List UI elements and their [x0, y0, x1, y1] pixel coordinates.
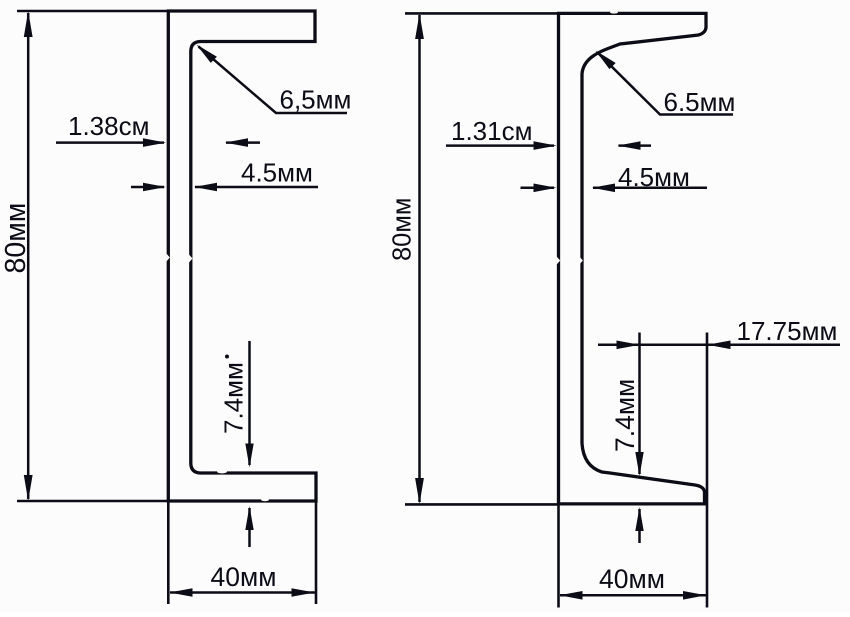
- svg-text:6.5мм: 6.5мм: [664, 87, 736, 117]
- svg-text:1.31см: 1.31см: [451, 116, 532, 146]
- svg-text:17.75мм: 17.75мм: [737, 316, 838, 346]
- svg-text:7.4мм: 7.4мм: [219, 362, 249, 434]
- svg-text:40мм: 40мм: [599, 564, 665, 594]
- svg-text:80мм: 80мм: [389, 198, 417, 261]
- svg-text:4.5мм: 4.5мм: [241, 158, 313, 188]
- svg-text:1.38см: 1.38см: [68, 111, 149, 141]
- svg-text:6,5мм: 6,5мм: [280, 85, 352, 115]
- svg-text:7.4мм: 7.4мм: [610, 379, 640, 452]
- svg-text:4.5мм: 4.5мм: [618, 162, 690, 192]
- svg-text:80мм: 80мм: [0, 203, 32, 274]
- svg-text:40мм: 40мм: [211, 562, 277, 592]
